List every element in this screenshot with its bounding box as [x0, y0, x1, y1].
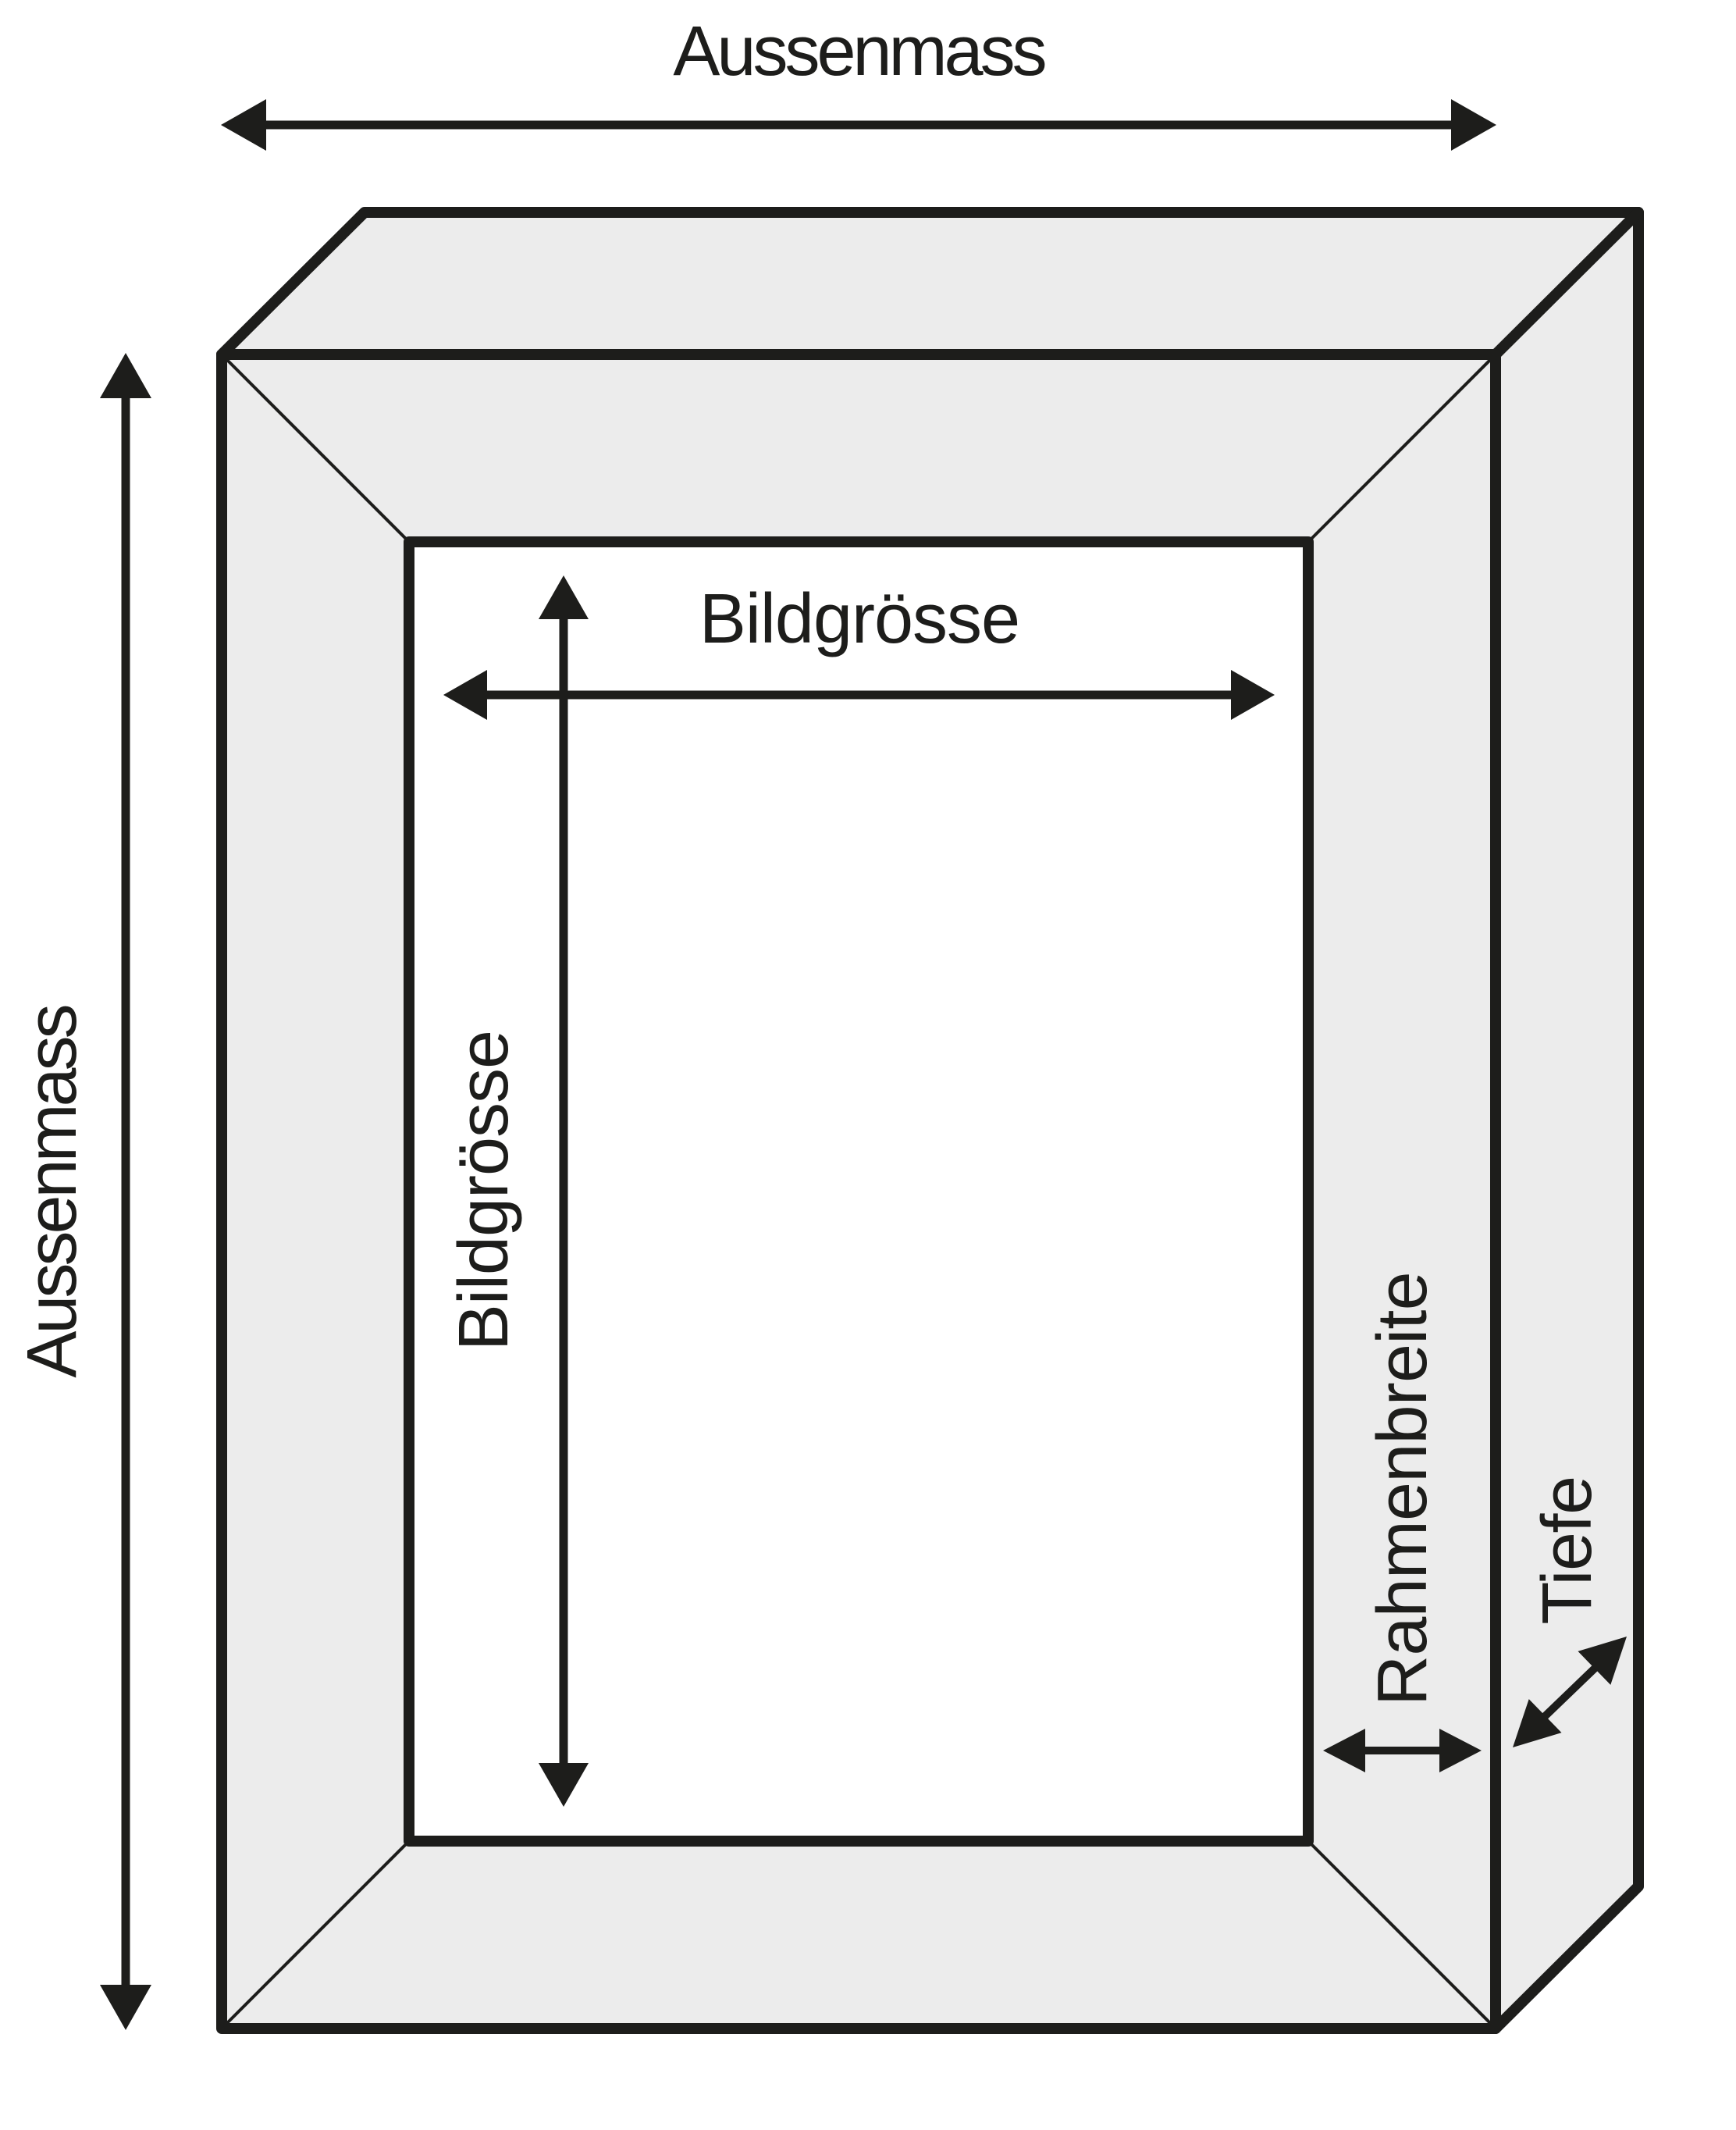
svg-text:Bildgrösse: Bildgrösse: [445, 1031, 523, 1351]
svg-text:Rahmenbreite: Rahmenbreite: [1364, 1272, 1442, 1706]
svg-text:Aussenmass: Aussenmass: [13, 1006, 91, 1377]
svg-text:Bildgrösse: Bildgrösse: [699, 580, 1019, 658]
svg-text:Tiefe: Tiefe: [1528, 1476, 1606, 1624]
svg-text:Aussenmass: Aussenmass: [673, 12, 1044, 91]
